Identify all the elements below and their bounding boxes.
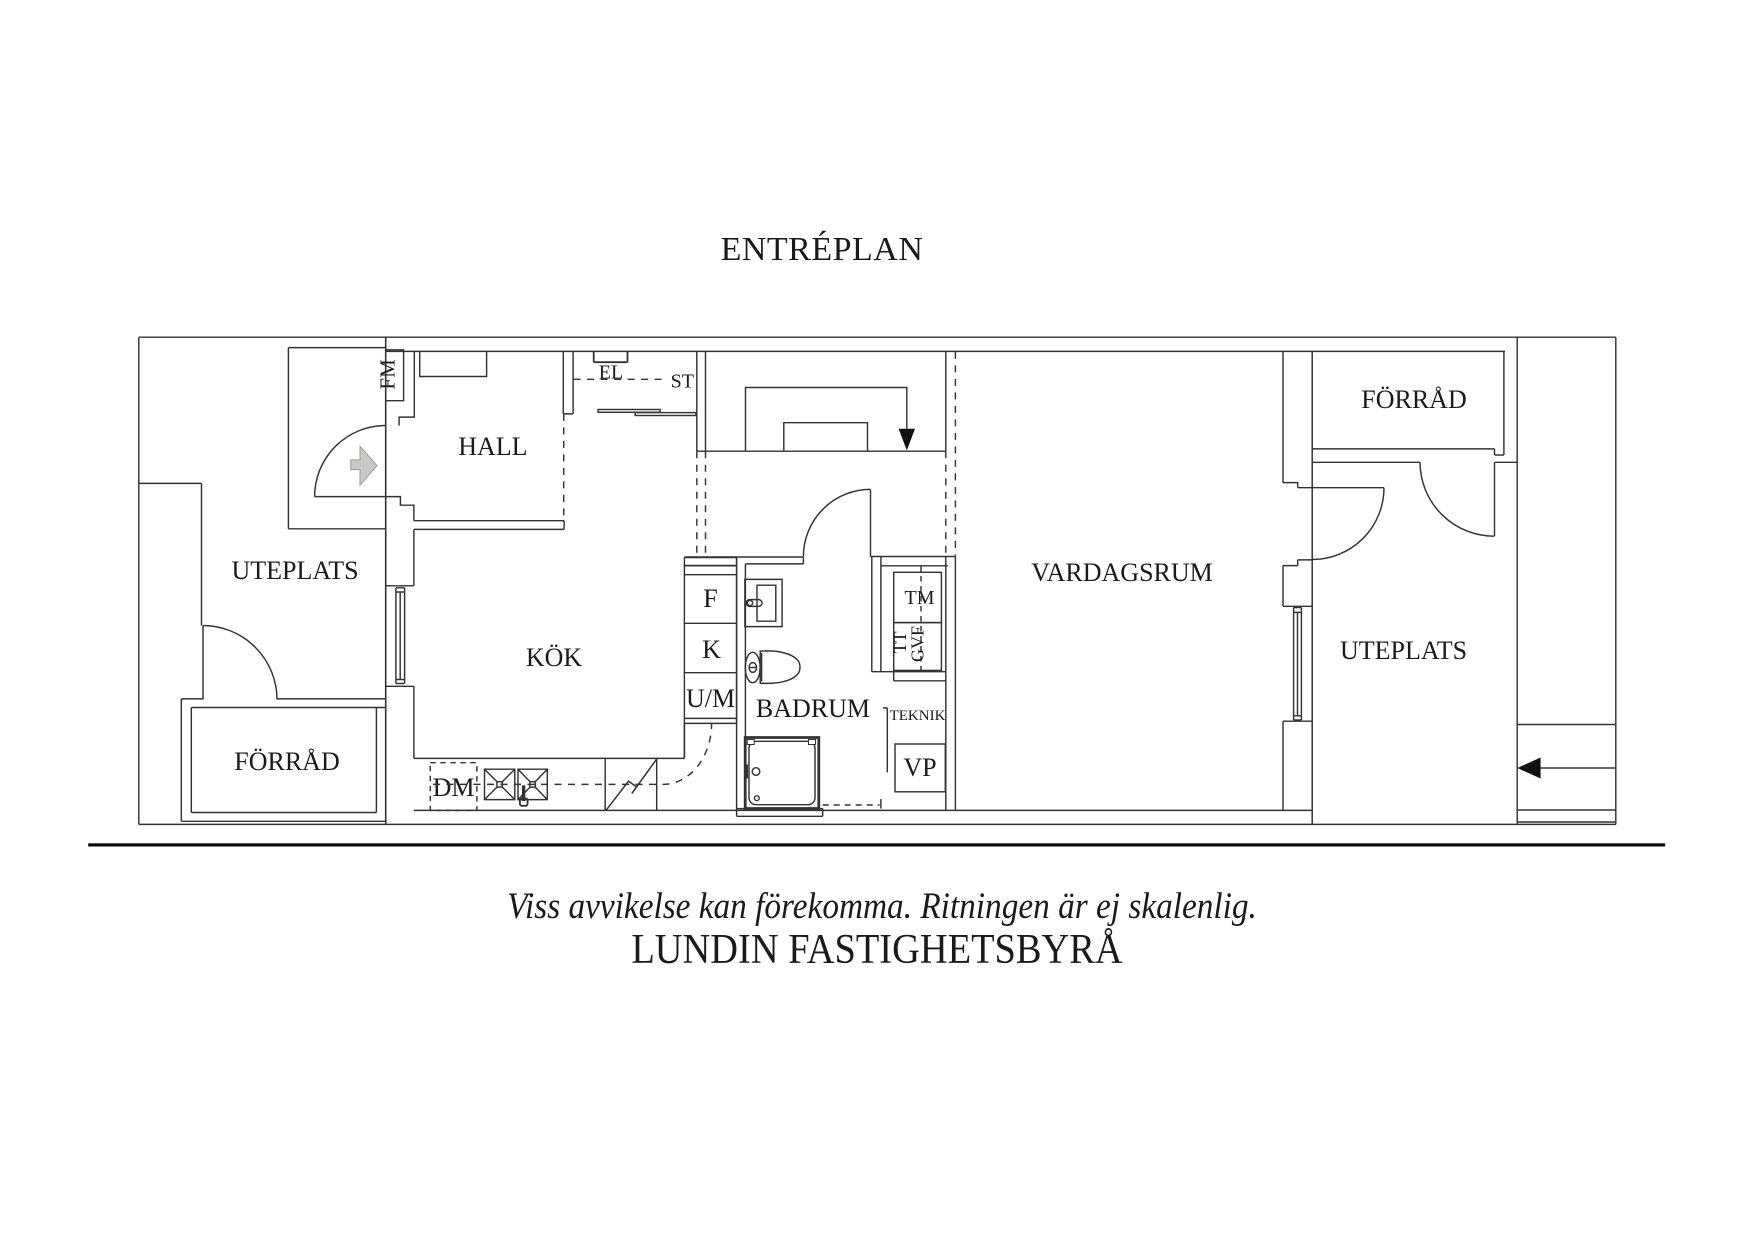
svg-text:LUNDIN FASTIGHETSBYRÅ: LUNDIN FASTIGHETSBYRÅ bbox=[631, 925, 1122, 972]
svg-text:U/M: U/M bbox=[686, 684, 735, 713]
svg-text:FÖRRÅD: FÖRRÅD bbox=[234, 747, 339, 776]
svg-text:DM: DM bbox=[433, 773, 475, 802]
svg-text:UTEPLATS: UTEPLATS bbox=[231, 556, 358, 585]
svg-text:UTEPLATS: UTEPLATS bbox=[1340, 636, 1467, 665]
svg-text:F: F bbox=[703, 584, 717, 613]
svg-text:VP: VP bbox=[903, 753, 936, 782]
svg-text:FÖRRÅD: FÖRRÅD bbox=[1361, 385, 1466, 414]
svg-text:ST: ST bbox=[671, 371, 694, 393]
svg-text:KÖK: KÖK bbox=[526, 643, 583, 672]
svg-text:ENTRÉPLAN: ENTRÉPLAN bbox=[721, 231, 924, 268]
svg-text:GVF: GVF bbox=[908, 626, 928, 662]
svg-text:VARDAGSRUM: VARDAGSRUM bbox=[1031, 558, 1213, 587]
svg-text:HALL: HALL bbox=[458, 432, 527, 461]
svg-text:TM: TM bbox=[905, 587, 935, 609]
svg-text:EL: EL bbox=[599, 362, 623, 384]
svg-text:TEKNIK: TEKNIK bbox=[890, 708, 946, 724]
svg-text:K: K bbox=[702, 635, 721, 664]
svg-text:BADRUM: BADRUM bbox=[756, 694, 870, 723]
svg-text:FM: FM bbox=[375, 359, 399, 390]
svg-text:Viss avvikelse kan förekomma.: Viss avvikelse kan förekomma. Ritningen … bbox=[507, 885, 1257, 926]
